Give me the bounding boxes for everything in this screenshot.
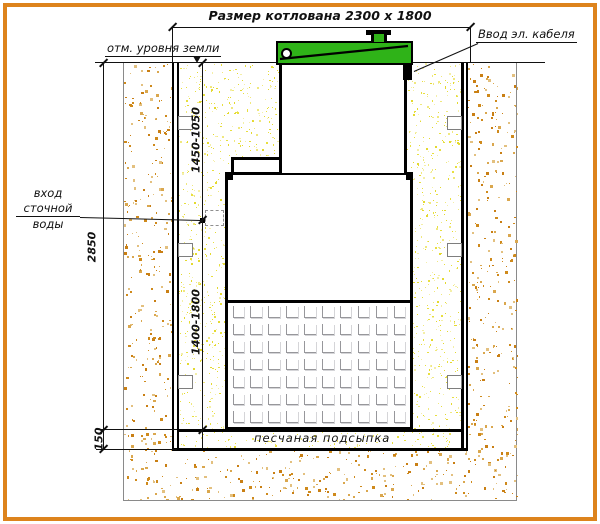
wall-plate [178,243,193,257]
pit-wall-left-outer [172,63,174,451]
dim-lower-range: 1400-1800 [190,289,203,355]
lid-open-edge [278,43,410,62]
tank-neck [282,63,404,173]
wall-plate [447,116,462,130]
pit-bottom-line [172,448,468,451]
inlet-label-line2: сточной [16,201,80,217]
soil-texture-left [124,63,173,500]
dim-line-total-depth [103,63,104,450]
cable-entry-label: Ввод эл. кабеля [476,27,577,43]
dim-ext-bedding-top [96,429,177,430]
tank-corner-dot-right [406,175,411,180]
soil-texture-right [467,63,518,500]
wall-plate [447,243,462,257]
lid-handle-base [371,34,387,42]
installation-diagram: Размер котлована 2300 х 1800 отм. уровня… [0,0,600,524]
dim-total-depth: 2850 [86,232,99,263]
shoulder-line-vertical [231,157,234,174]
wall-plate [178,375,193,389]
wastewater-inlet-box [205,210,224,226]
pit-wall-right-outer [466,63,468,451]
soil-texture-bottom [173,450,467,500]
sand-bedding-label: песчаная подсыпка [254,431,390,445]
pit-size-text: Размер котлована 2300 х 1800 [208,8,431,23]
tank-corner-dot-left [228,175,233,180]
tank-lid [276,41,413,65]
inlet-label-line3: воды [16,217,80,232]
ballast-grid-pattern [229,303,409,427]
pit-size-label: Размер котлована 2300 х 1800 [171,8,469,23]
shoulder-line-horizontal [231,157,281,160]
dim-upper-range: 1450-1050 [190,107,203,173]
dim-line-pit-width [172,27,470,28]
inlet-label-line1: вход [16,186,80,201]
wastewater-inlet-label: вход сточной воды [16,186,80,232]
dim-bedding-thickness: 150 [93,428,106,451]
wall-plate [447,375,462,389]
dim-ext-bedding-bottom [96,449,177,450]
ground-level-label: отм. уровня земли [105,41,221,57]
lid-hole [281,48,292,59]
